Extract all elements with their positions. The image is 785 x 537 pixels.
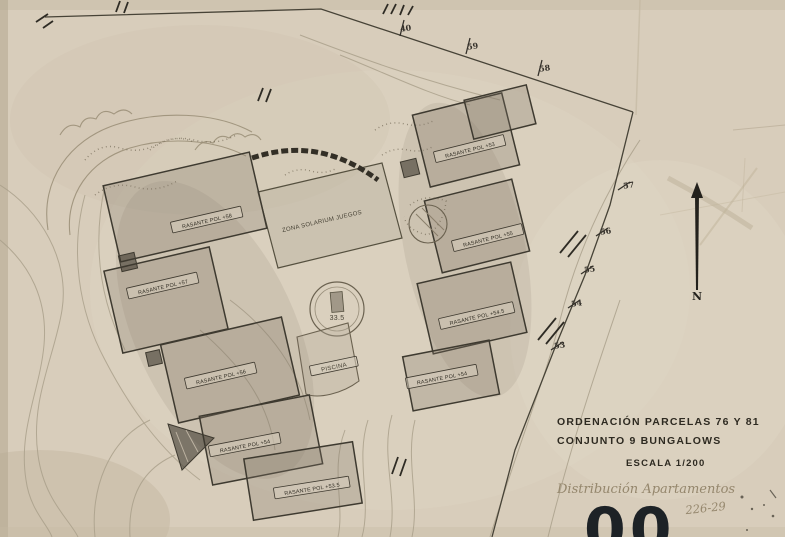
north-label: N [692,290,702,303]
elevation-value: 53 [553,339,566,351]
elevation-value: 55 [583,263,595,274]
elevation-value: 56 [599,225,612,237]
stair-core [146,350,163,367]
sheet-number: 00 [584,495,676,537]
elevation-value: 57 [622,179,634,190]
stair-core [118,252,137,271]
stair-core [400,158,419,177]
drawing-title-line1: ORDENACIÓN PARCELAS 76 Y 81 [557,415,760,428]
pool-level-value: 33.5 [330,315,345,322]
elevation-value: 59 [466,40,479,52]
elevation-value: 40 [399,22,412,34]
drawing-title-line2: CONJUNTO 9 BUNGALOWS [557,435,721,447]
site-plan-drawing: 40 59 58 57 56 55 54 53 ZONA SOLARIUM JU… [0,0,785,537]
elevation-value: 58 [538,62,551,74]
elevation-value: 54 [570,297,583,309]
scale-label: ESCALA 1/200 [626,458,706,469]
